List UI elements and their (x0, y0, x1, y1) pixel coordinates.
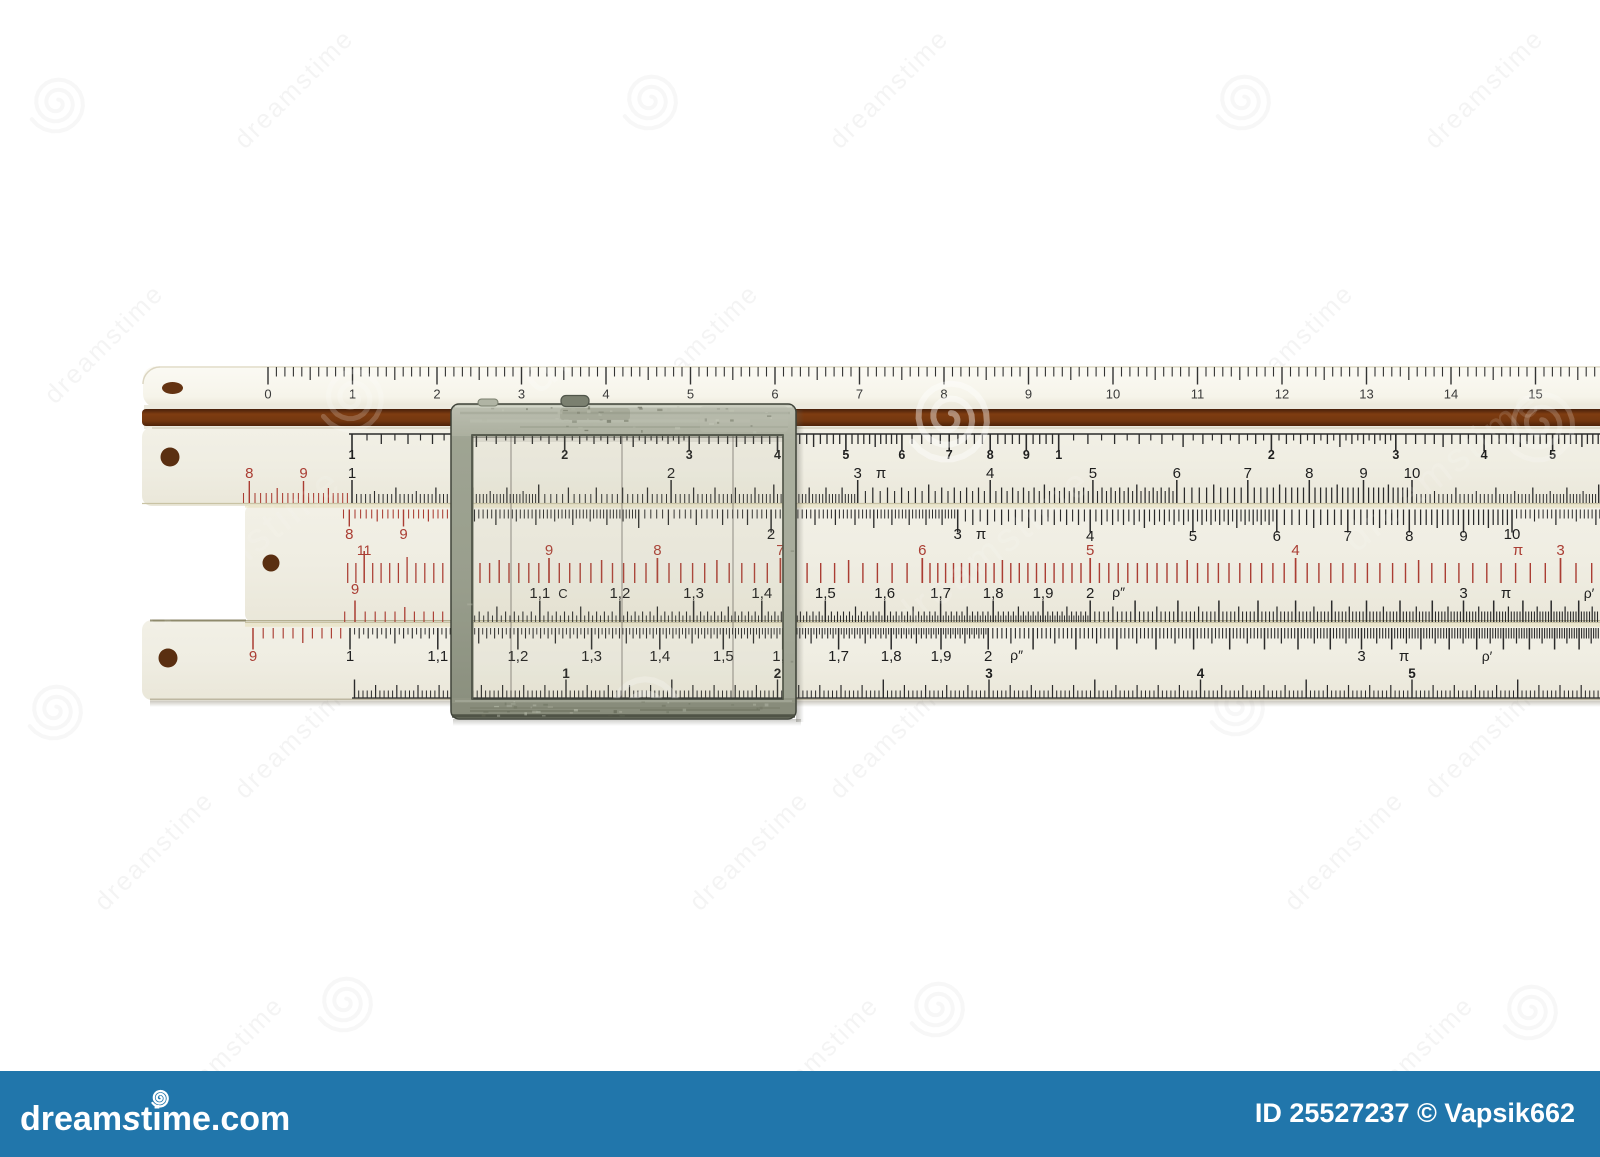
svg-text:2: 2 (984, 648, 992, 665)
svg-text:π: π (1513, 542, 1523, 559)
svg-text:8: 8 (245, 465, 253, 482)
svg-text:13: 13 (1359, 387, 1373, 402)
svg-text:ρ′: ρ′ (1584, 585, 1595, 601)
svg-text:0: 0 (264, 387, 271, 402)
svg-text:5: 5 (1089, 465, 1097, 482)
svg-text:11: 11 (1191, 387, 1205, 402)
svg-text:1,7: 1,7 (828, 648, 849, 665)
svg-text:4: 4 (602, 387, 609, 402)
svg-text:2: 2 (1268, 448, 1275, 462)
svg-text:2: 2 (1086, 585, 1094, 602)
svg-text:ρ′: ρ′ (1482, 648, 1493, 664)
svg-text:1: 1 (349, 448, 356, 462)
svg-text:5: 5 (1408, 666, 1416, 681)
svg-text:3: 3 (985, 666, 993, 681)
svg-text:1,5: 1,5 (815, 585, 836, 602)
svg-text:3: 3 (1357, 648, 1365, 665)
svg-text:5: 5 (687, 387, 694, 402)
svg-text:5: 5 (842, 448, 849, 462)
svg-text:9: 9 (399, 526, 407, 543)
svg-text:ρ″: ρ″ (1010, 647, 1023, 663)
svg-text:1,8: 1,8 (881, 648, 902, 665)
svg-text:1,1: 1,1 (427, 648, 448, 665)
svg-text:3: 3 (854, 465, 862, 482)
svg-text:9: 9 (1459, 528, 1467, 545)
svg-text:9: 9 (1023, 448, 1030, 462)
svg-text:11: 11 (357, 542, 372, 558)
svg-text:5: 5 (1189, 528, 1197, 545)
svg-text:6: 6 (771, 387, 778, 402)
svg-text:3: 3 (518, 387, 525, 402)
svg-text:9: 9 (351, 581, 359, 598)
svg-text:6: 6 (898, 448, 905, 462)
svg-text:4: 4 (1197, 666, 1205, 681)
svg-text:5: 5 (1086, 542, 1094, 559)
svg-text:9: 9 (249, 648, 257, 665)
svg-text:8: 8 (987, 448, 994, 462)
svg-text:8: 8 (1405, 528, 1413, 545)
svg-text:π: π (876, 465, 886, 482)
svg-text:3: 3 (1392, 448, 1399, 462)
svg-text:9: 9 (1025, 387, 1032, 402)
svg-text:9: 9 (1359, 465, 1367, 482)
svg-text:12: 12 (1275, 387, 1289, 402)
svg-text:3: 3 (954, 526, 962, 543)
svg-text:1,8: 1,8 (983, 585, 1004, 602)
svg-text:3: 3 (1459, 585, 1467, 602)
svg-text:4: 4 (986, 465, 994, 482)
svg-text:4: 4 (1291, 542, 1299, 559)
svg-text:π: π (1399, 648, 1409, 665)
svg-text:1: 1 (346, 648, 354, 665)
svg-text:8: 8 (345, 526, 353, 543)
svg-text:1: 1 (348, 465, 356, 482)
svg-text:π: π (1501, 585, 1511, 602)
svg-text:7: 7 (856, 387, 863, 402)
svg-text:14: 14 (1444, 387, 1458, 402)
svg-text:7: 7 (1244, 465, 1252, 482)
svg-text:6: 6 (1273, 528, 1281, 545)
svg-text:1,9: 1,9 (931, 648, 952, 665)
svg-text:6: 6 (1173, 465, 1181, 482)
svg-text:2: 2 (433, 387, 440, 402)
svg-text:8: 8 (1305, 465, 1313, 482)
svg-text:ρ″: ρ″ (1112, 584, 1125, 600)
svg-text:ID 25527237 © Vapsik662: ID 25527237 © Vapsik662 (1255, 1098, 1575, 1128)
svg-text:10: 10 (1106, 387, 1120, 402)
svg-text:3: 3 (1556, 542, 1564, 559)
svg-text:10: 10 (1504, 526, 1521, 543)
svg-text:6: 6 (918, 542, 926, 559)
svg-text:1,9: 1,9 (1033, 585, 1054, 602)
svg-text:1: 1 (1055, 448, 1062, 462)
